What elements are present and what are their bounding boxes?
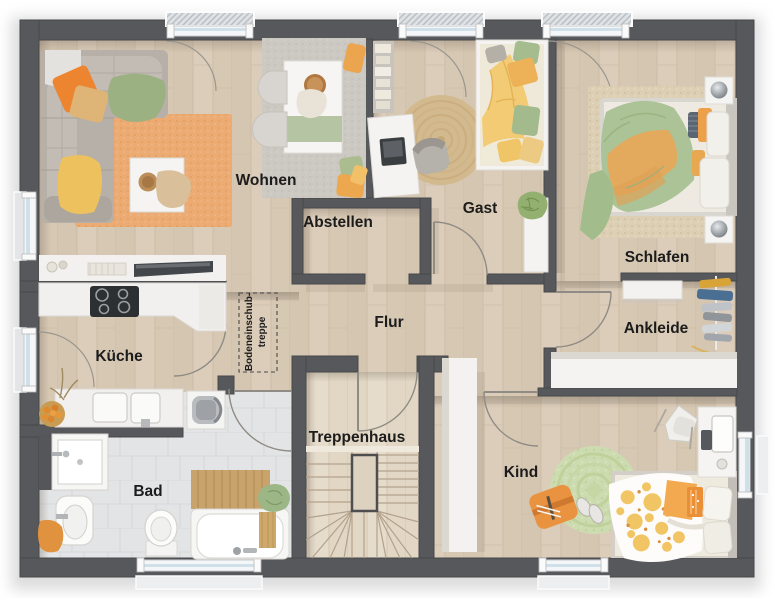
svg-text:Flur: Flur	[374, 314, 403, 331]
svg-text:Abstellen: Abstellen	[303, 214, 373, 231]
svg-text:Kind: Kind	[504, 464, 538, 481]
svg-text:Schlafen: Schlafen	[625, 249, 690, 266]
svg-text:Wohnen: Wohnen	[236, 172, 297, 189]
svg-text:treppe: treppe	[257, 316, 268, 347]
svg-text:Bad: Bad	[133, 483, 162, 500]
svg-text:Ankleide: Ankleide	[624, 320, 689, 337]
svg-text:Treppenhaus: Treppenhaus	[309, 429, 405, 446]
svg-text:Gast: Gast	[463, 200, 497, 217]
svg-text:Bodeneinschub-: Bodeneinschub-	[244, 293, 255, 371]
svg-text:Küche: Küche	[95, 348, 143, 365]
